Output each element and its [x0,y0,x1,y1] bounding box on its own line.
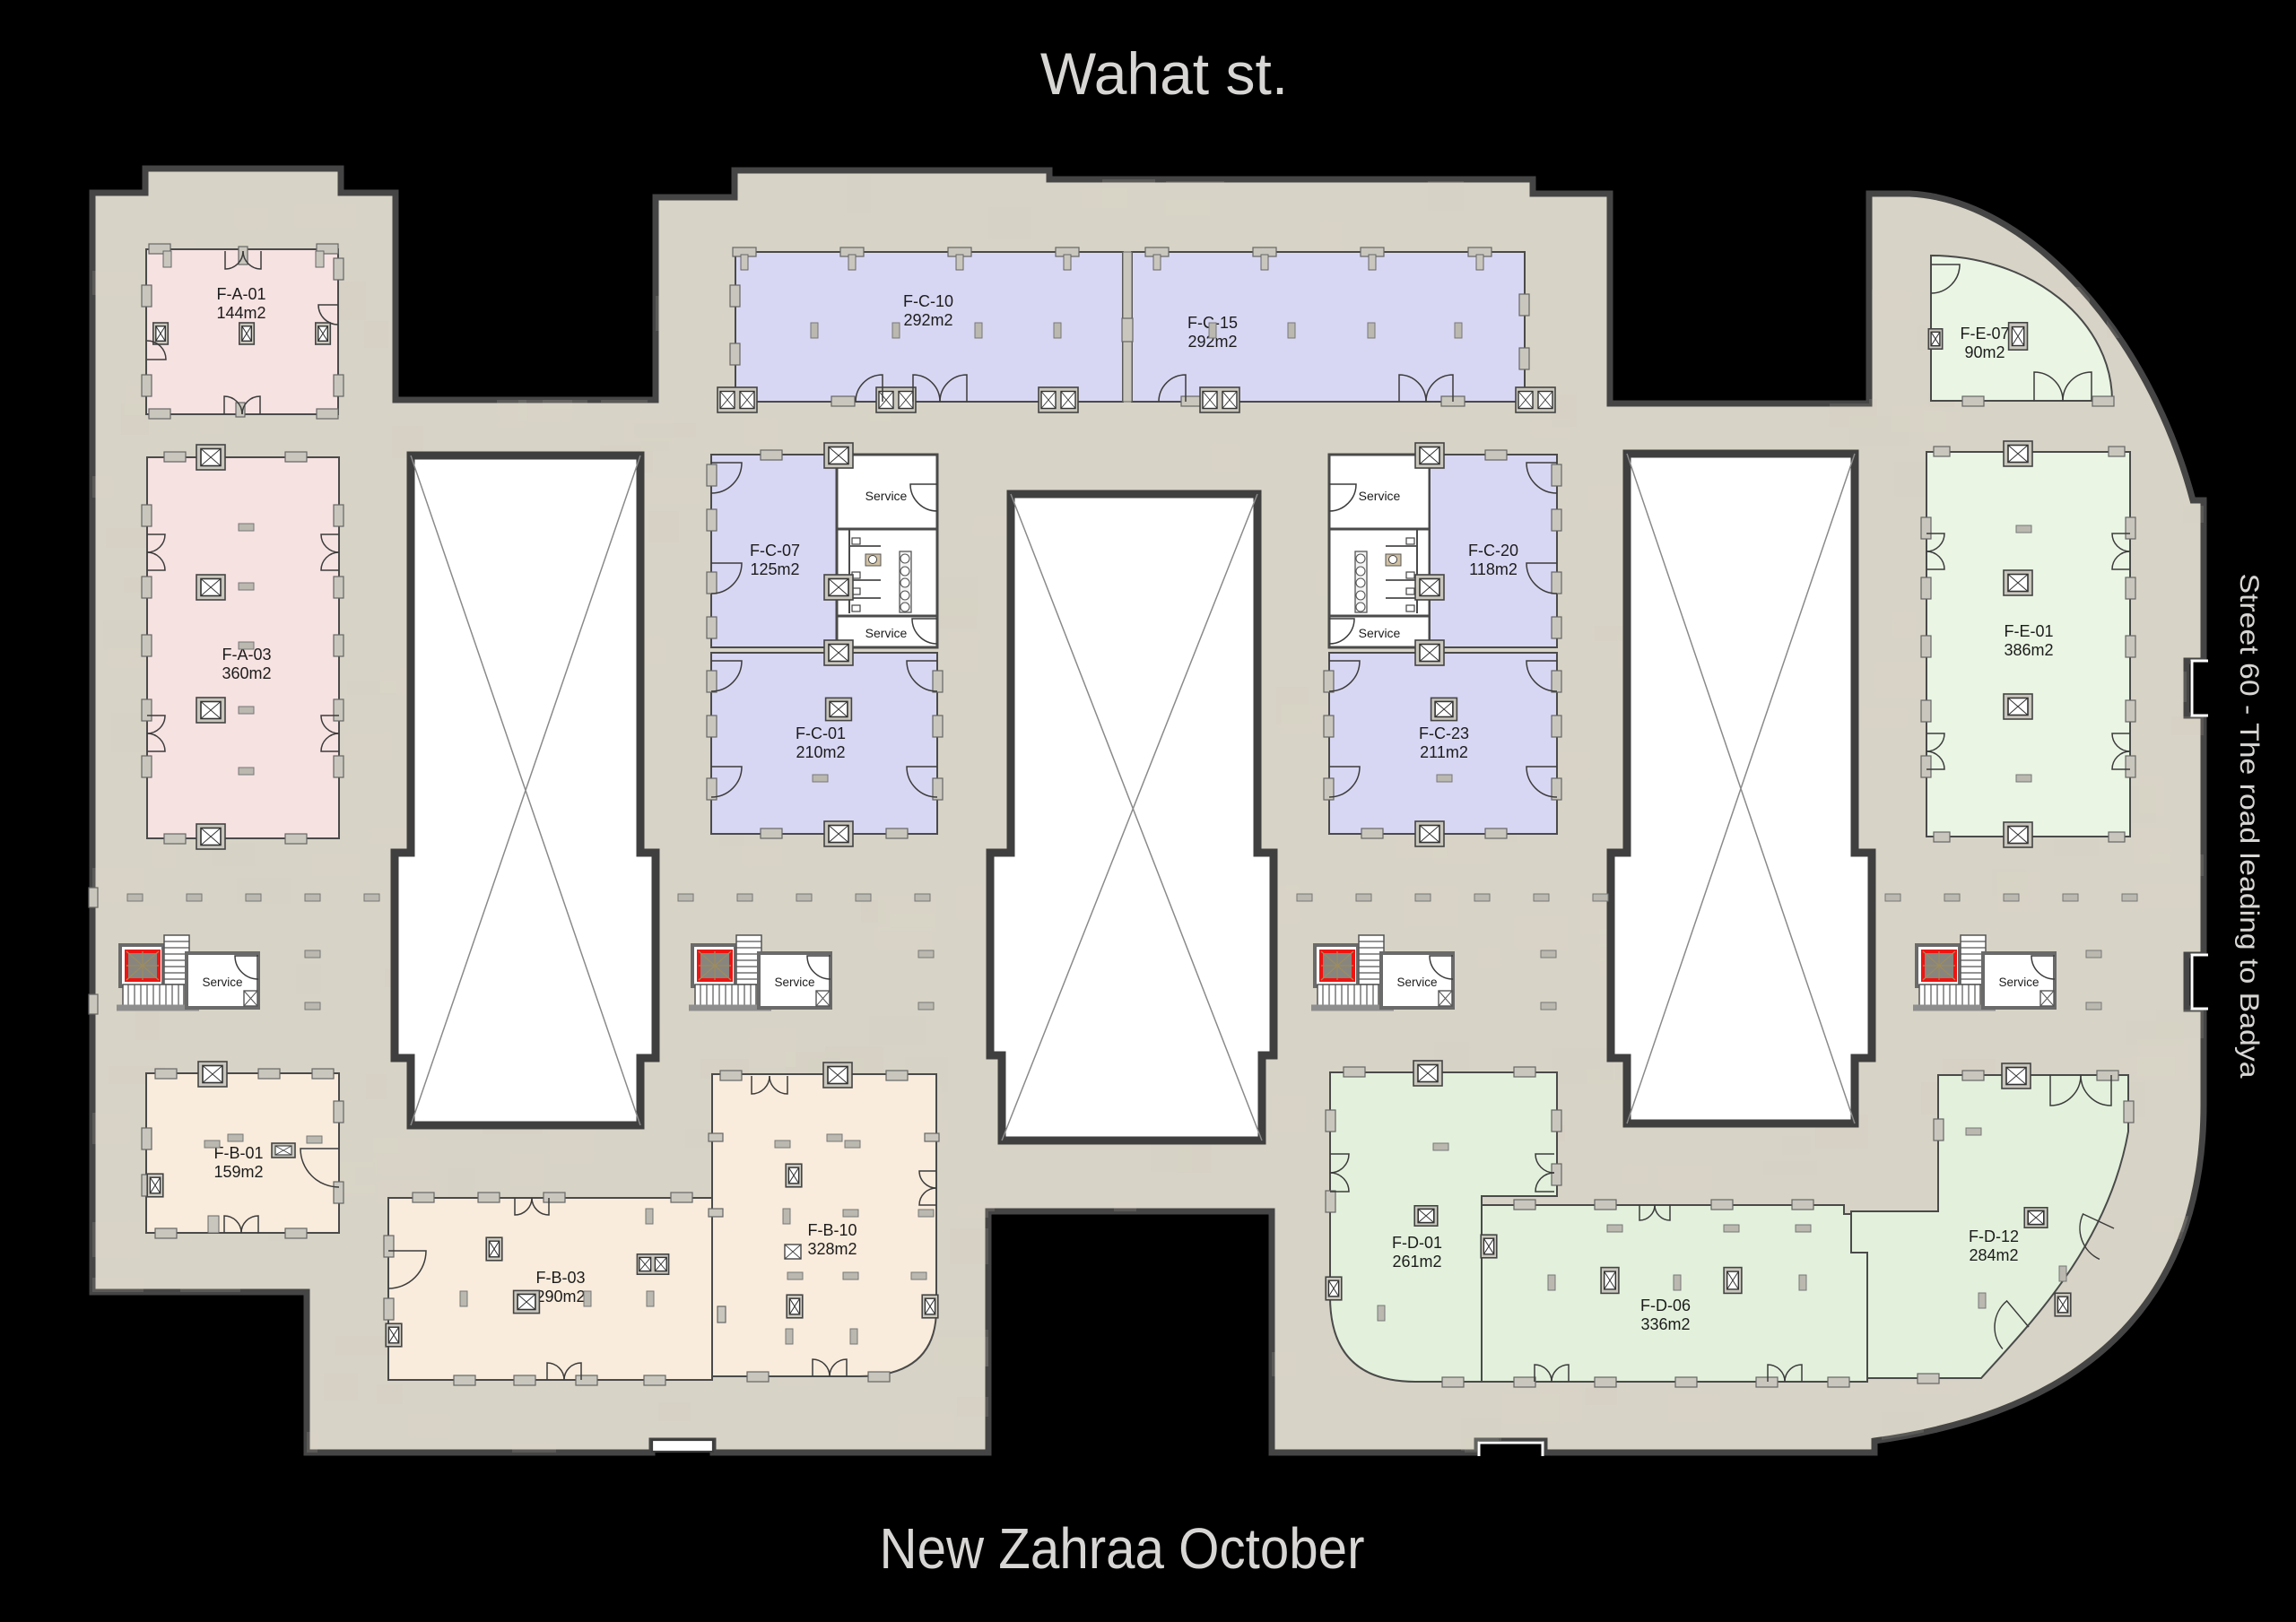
svg-text:Service: Service [202,976,242,989]
svg-text:Service: Service [1998,976,2039,989]
svg-text:F-B-01: F-B-01 [213,1144,263,1162]
svg-text:Wahat st.: Wahat st. [1040,40,1288,107]
svg-text:261m2: 261m2 [1392,1253,1441,1271]
svg-text:386m2: 386m2 [2004,641,2053,659]
svg-text:336m2: 336m2 [1640,1315,1690,1333]
svg-text:F-C-10: F-C-10 [903,292,953,310]
svg-text:F-D-12: F-D-12 [1969,1227,2019,1245]
svg-text:211m2: 211m2 [1420,743,1468,761]
svg-text:Service: Service [1359,489,1401,503]
svg-text:F-C-07: F-C-07 [750,542,800,559]
svg-text:F-D-06: F-D-06 [1640,1297,1691,1314]
svg-text:284m2: 284m2 [1969,1246,2018,1264]
svg-text:F-D-01: F-D-01 [1392,1234,1442,1252]
svg-text:118m2: 118m2 [1469,560,1518,578]
svg-text:159m2: 159m2 [213,1163,263,1181]
svg-text:125m2: 125m2 [750,560,799,578]
svg-text:F-C-23: F-C-23 [1419,724,1469,742]
svg-text:360m2: 360m2 [222,664,271,682]
svg-text:New Zahraa October: New Zahraa October [880,1516,1365,1581]
svg-text:F-E-07: F-E-07 [1960,325,2009,343]
svg-text:F-B-10: F-B-10 [807,1221,857,1239]
svg-text:F-E-01: F-E-01 [2004,622,2053,640]
svg-text:328m2: 328m2 [807,1240,857,1258]
svg-text:210m2: 210m2 [796,743,845,761]
svg-text:F-C-20: F-C-20 [1468,542,1518,559]
svg-text:144m2: 144m2 [216,304,265,322]
svg-text:Service: Service [865,489,908,503]
svg-text:F-A-01: F-A-01 [216,285,265,303]
svg-text:Service: Service [1396,976,1437,989]
svg-text:290m2: 290m2 [535,1288,585,1305]
svg-text:Service: Service [1359,626,1401,640]
svg-text:F-C-01: F-C-01 [796,724,846,742]
svg-text:90m2: 90m2 [1964,343,2005,361]
svg-text:Service: Service [774,976,814,989]
svg-text:Street 60 - The road leading t: Street 60 - The road leading to Badya [2234,574,2264,1079]
svg-text:Service: Service [865,626,908,640]
svg-text:F-B-03: F-B-03 [535,1269,585,1287]
svg-text:292m2: 292m2 [903,311,952,329]
